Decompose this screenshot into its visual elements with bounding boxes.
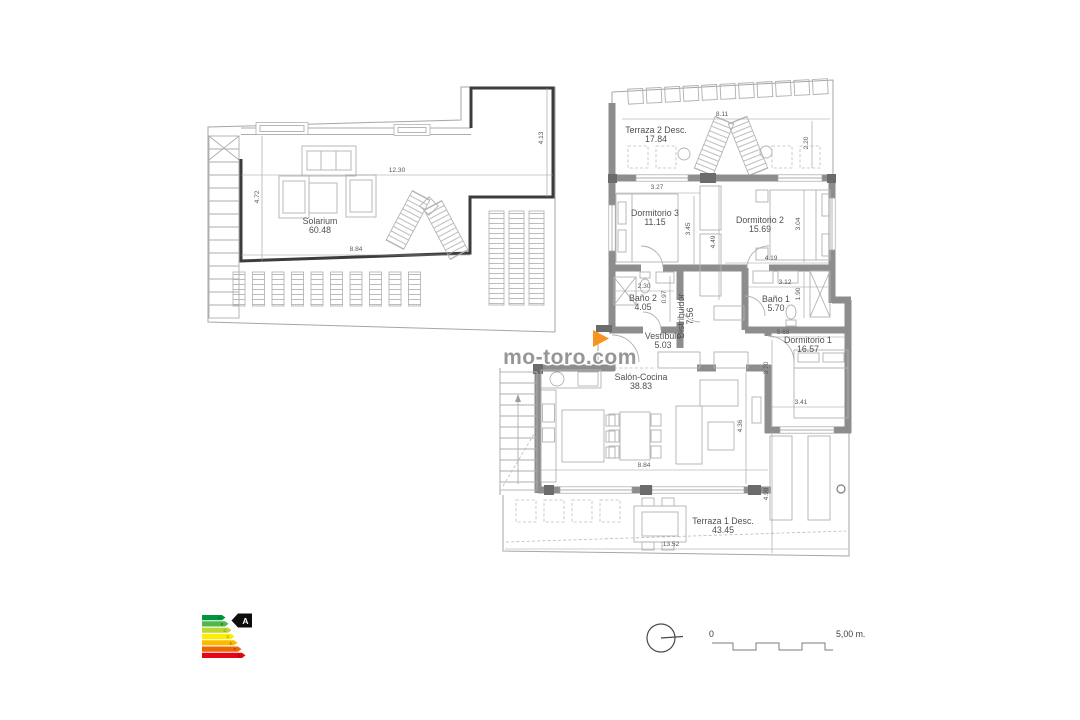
energy-bar bbox=[202, 615, 226, 620]
room-label: Solarium60.48 bbox=[303, 216, 338, 235]
dimension-label: 8.11 bbox=[716, 111, 729, 118]
energy-bar-letter: E bbox=[230, 640, 233, 645]
room-label: Terraza 2 Desc.17.84 bbox=[625, 125, 687, 144]
salon-stairs-icon bbox=[500, 372, 537, 490]
dimension-label: 4.19 bbox=[765, 255, 778, 262]
energy-bar bbox=[202, 628, 232, 633]
scale-zero-label: 0 bbox=[709, 629, 714, 639]
scale-max-label: 5,00 m. bbox=[836, 629, 865, 639]
dimension-label: 8.84 bbox=[638, 462, 651, 469]
dimension-label: 3.45 bbox=[685, 222, 692, 235]
energy-rating-label: ABCDEFG A bbox=[202, 614, 252, 659]
dimension-label: 4.49 bbox=[710, 235, 717, 248]
dimension-label: 2.30 bbox=[638, 283, 651, 290]
solarium-furniture bbox=[279, 146, 468, 259]
dimension-label: 8.84 bbox=[350, 246, 363, 253]
room-label: Dormitorio 215.69 bbox=[736, 215, 784, 234]
compass-icon bbox=[647, 624, 683, 652]
dimension-label: 3.41 bbox=[795, 399, 808, 406]
room-label: Vestíbulo5.03 bbox=[645, 331, 681, 350]
dimension-label: 4.72 bbox=[254, 190, 261, 203]
floorplan-canvas: Solarium60.48Terraza 2 Desc.17.84Dormito… bbox=[0, 0, 1080, 720]
dimension-label: 4.98 bbox=[763, 487, 770, 500]
dimension-label: 1.90 bbox=[795, 287, 802, 300]
energy-bar-letter: B bbox=[221, 622, 224, 627]
scale-bar: 0 5,00 m. bbox=[709, 629, 865, 650]
watermark: mo-toro.com bbox=[503, 346, 637, 369]
energy-bar-letter: A bbox=[218, 615, 221, 620]
dimension-label: 3.27 bbox=[651, 184, 664, 191]
terraza2-pergola bbox=[628, 79, 829, 104]
room-label: Dormitorio 311.15 bbox=[631, 208, 679, 227]
entrance-arrow-icon bbox=[593, 330, 609, 347]
dimension-label: 3.04 bbox=[795, 217, 802, 230]
dimension-label: 3.70 bbox=[763, 361, 770, 374]
solarium-plan bbox=[208, 87, 555, 332]
room-label: Terraza 1 Desc.43.45 bbox=[692, 516, 754, 535]
dimension-label: 5.68 bbox=[777, 329, 790, 336]
dimension-label: 2.20 bbox=[803, 136, 810, 149]
energy-bar bbox=[202, 621, 229, 626]
energy-bar-letter: D bbox=[227, 634, 230, 639]
room-label: Baño 24.05 bbox=[629, 293, 657, 312]
floorplan-page: Solarium60.48Terraza 2 Desc.17.84Dormito… bbox=[0, 0, 1080, 720]
dimension-label: 12.30 bbox=[389, 167, 406, 174]
energy-bar bbox=[202, 634, 235, 639]
dimension-label: 4.36 bbox=[737, 419, 744, 432]
dimension-label: 4.13 bbox=[538, 131, 545, 144]
energy-rating-letter: A bbox=[242, 616, 248, 626]
energy-bar-letter: C bbox=[224, 628, 227, 633]
dimension-label: 3.12 bbox=[779, 279, 792, 286]
dimension-label: 0.97 bbox=[661, 290, 668, 303]
room-label: Salón-Cocina38.83 bbox=[615, 372, 668, 391]
energy-bar-letter: G bbox=[237, 653, 240, 658]
dimension-label: 13.52 bbox=[663, 541, 680, 548]
